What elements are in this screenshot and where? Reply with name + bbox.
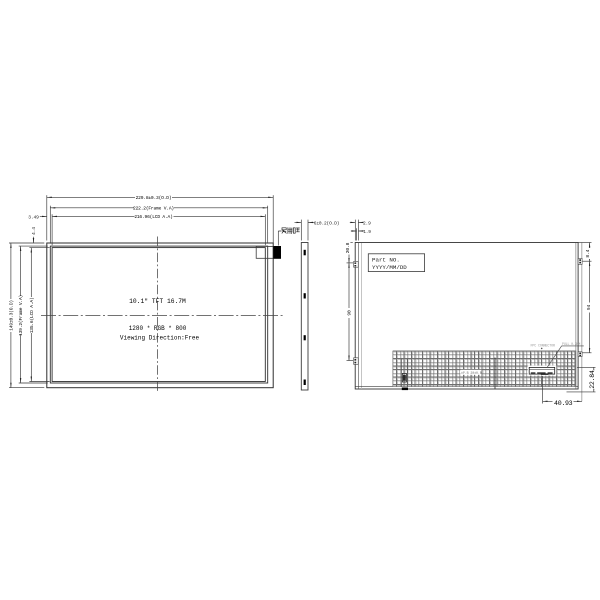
svg-text:22.84: 22.84	[589, 370, 596, 389]
svg-text:3.49: 3.49	[28, 214, 39, 220]
svg-text:135.6(LCD A.A): 135.6(LCD A.A)	[29, 298, 35, 334]
svg-text:229.8±0.3(O.D): 229.8±0.3(O.D)	[136, 195, 172, 201]
svg-text:Viewing Direction:Free: Viewing Direction:Free	[120, 335, 200, 342]
svg-text:139.2(Frame V.A): 139.2(Frame V.A)	[18, 295, 24, 336]
svg-text:222.2(Frame V.A): 222.2(Frame V.A)	[133, 206, 174, 212]
svg-text:90: 90	[346, 310, 352, 316]
svg-text:10.1" TFT 16.7M: 10.1" TFT 16.7M	[129, 298, 186, 305]
svg-text:216.96(LCD A.A): 216.96(LCD A.A)	[134, 214, 172, 220]
svg-text:94: 94	[586, 305, 592, 311]
svg-text:±P.B 20±0.B: ±P.B 20±0.B	[461, 371, 482, 375]
svg-text:4.4: 4.4	[31, 227, 37, 235]
svg-text:YYYY/MM/DD: YYYY/MM/DD	[372, 264, 407, 271]
svg-text:6±0.2(O.D): 6±0.2(O.D)	[314, 220, 340, 226]
svg-text:1280 * RGB * 800: 1280 * RGB * 800	[129, 325, 187, 332]
svg-text:149±0.3(O.D): 149±0.3(O.D)	[8, 300, 14, 331]
svg-text:8.4: 8.4	[585, 249, 591, 257]
svg-text:Part NO.: Part NO.	[372, 256, 400, 263]
svg-text:40.93: 40.93	[554, 400, 573, 407]
svg-text:2.9: 2.9	[363, 220, 371, 226]
svg-text:1.9: 1.9	[363, 229, 371, 235]
svg-text:20.8: 20.8	[345, 242, 351, 253]
svg-text:FPC CONNECTOR: FPC CONNECTOR	[531, 344, 556, 348]
svg-text:PULL 0.3MM: PULL 0.3MM	[562, 342, 580, 346]
